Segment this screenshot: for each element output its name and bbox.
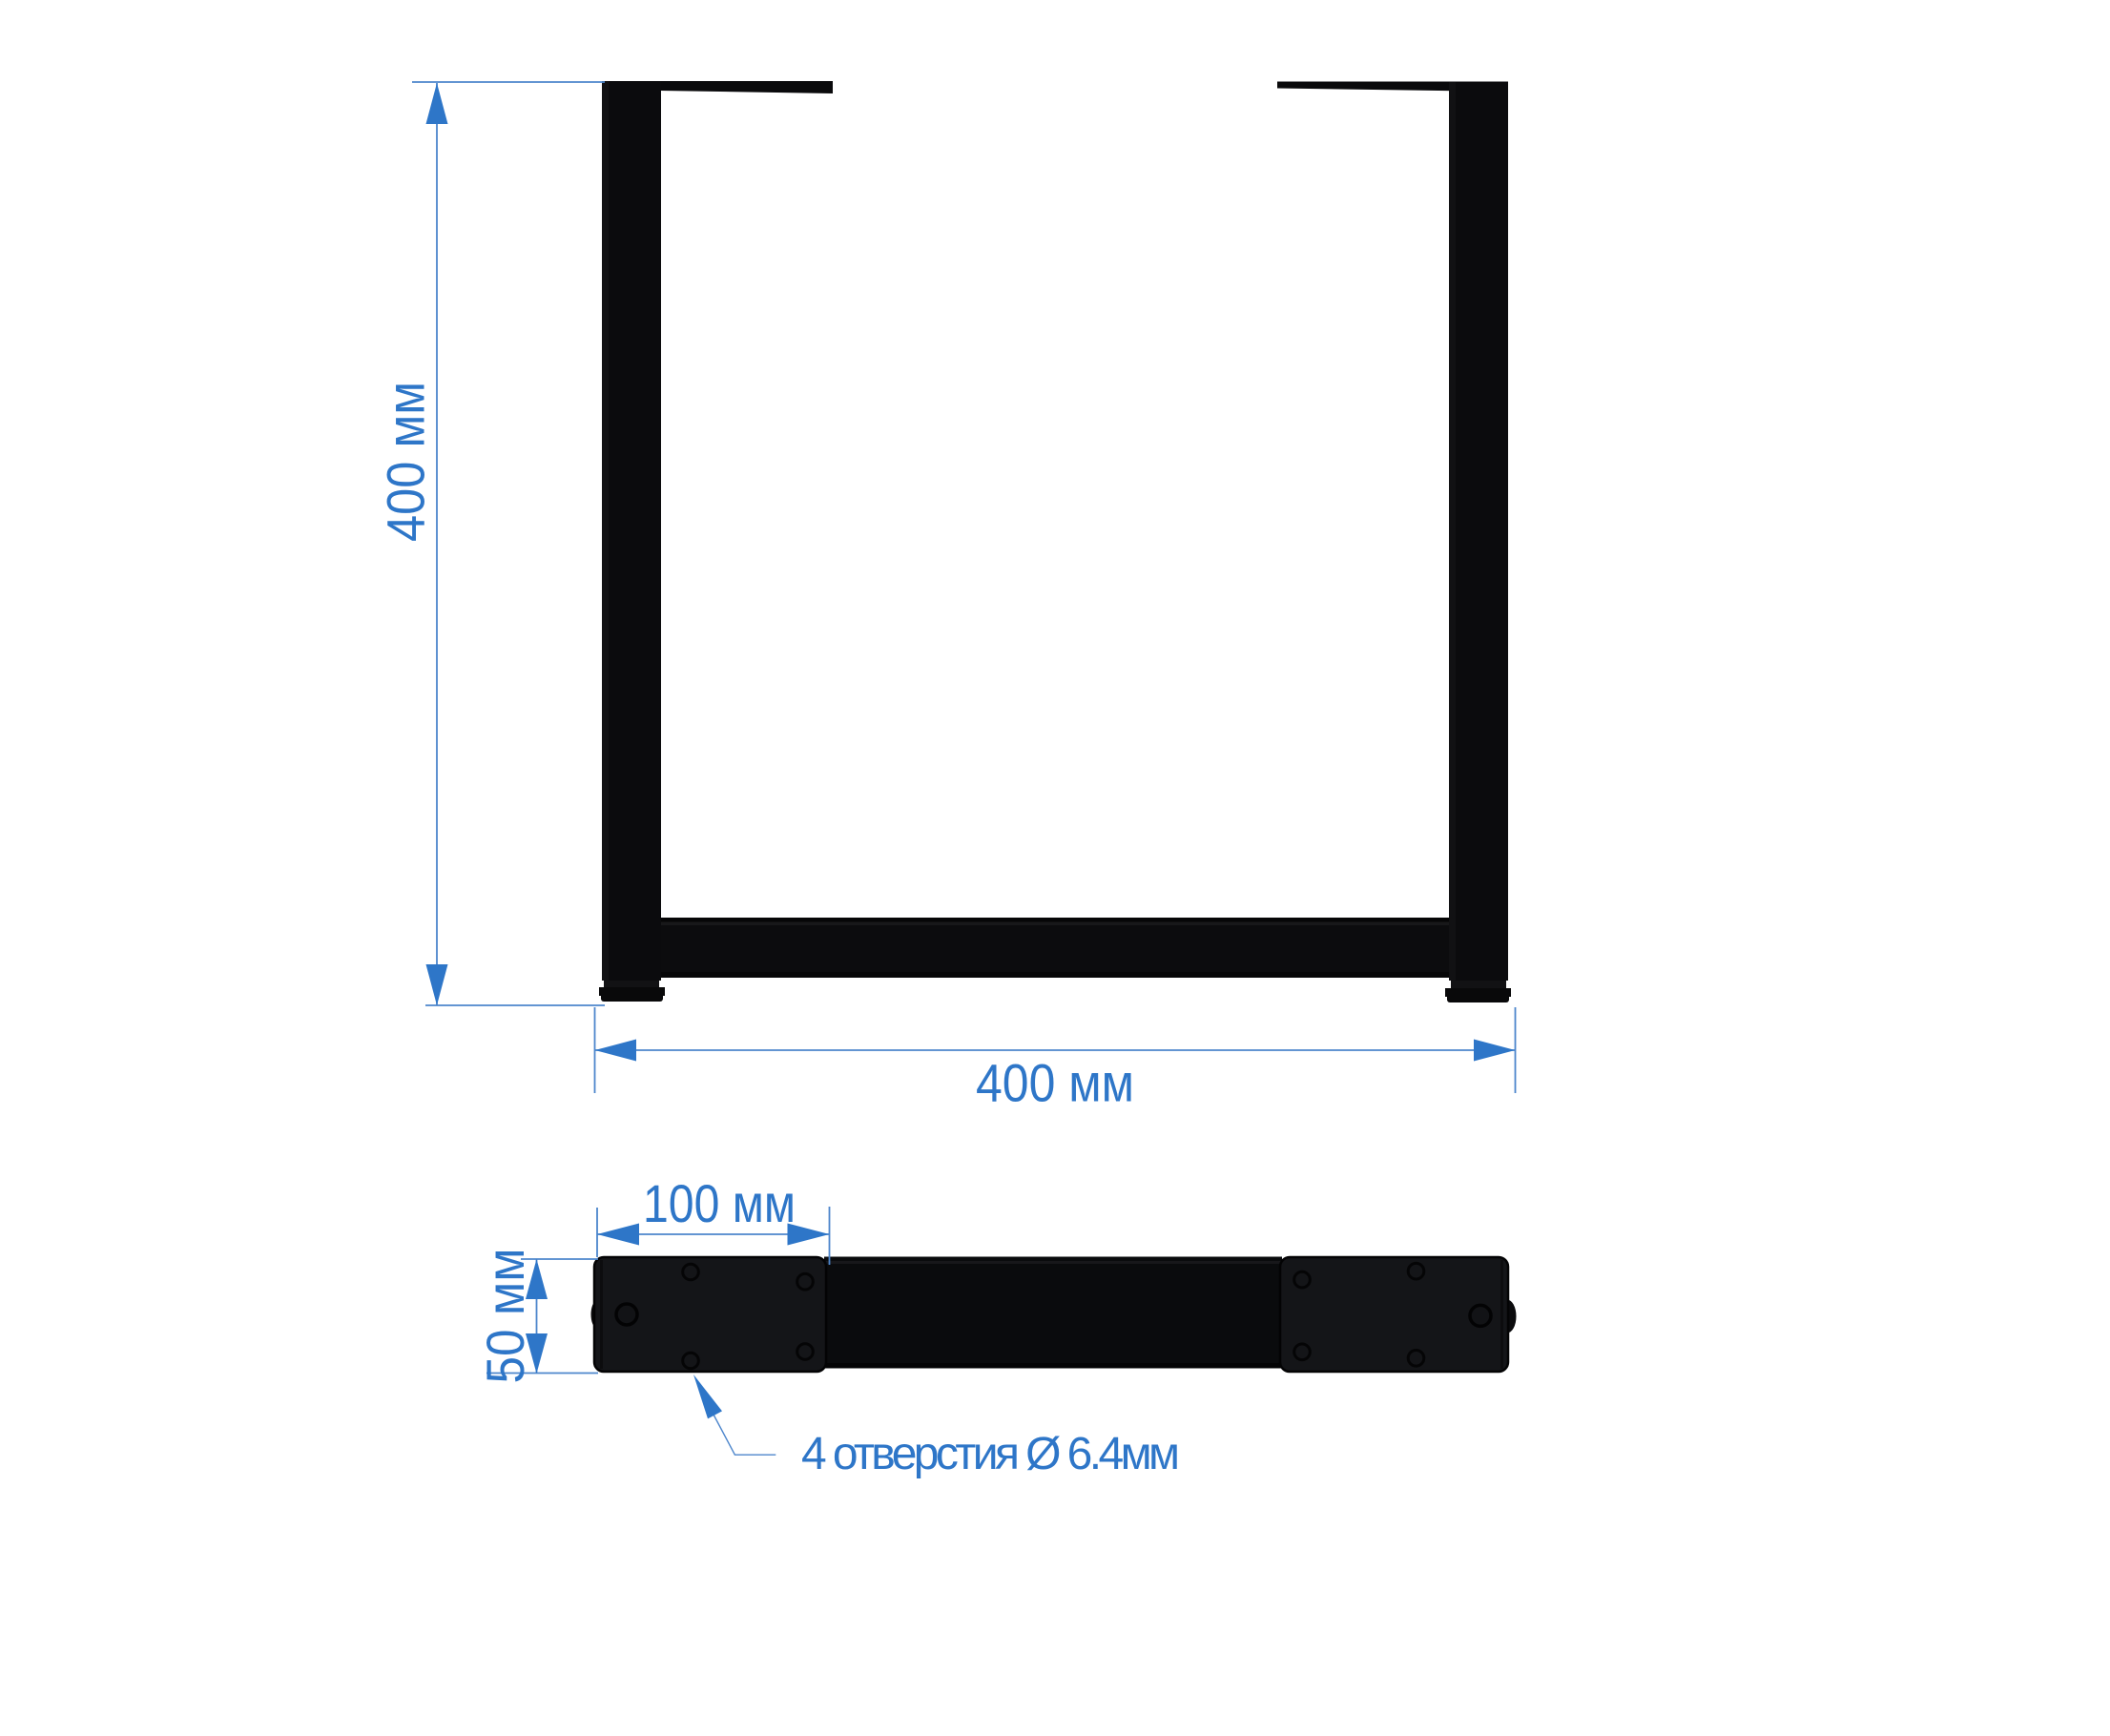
svg-text:50 мм: 50 мм — [476, 1249, 535, 1384]
svg-text:400 мм: 400 мм — [976, 1053, 1134, 1112]
svg-text:400 мм: 400 мм — [377, 382, 436, 542]
svg-text:100 мм: 100 мм — [643, 1174, 796, 1233]
svg-text:4 отверстия Ø 6.4мм: 4 отверстия Ø 6.4мм — [801, 1429, 1180, 1479]
